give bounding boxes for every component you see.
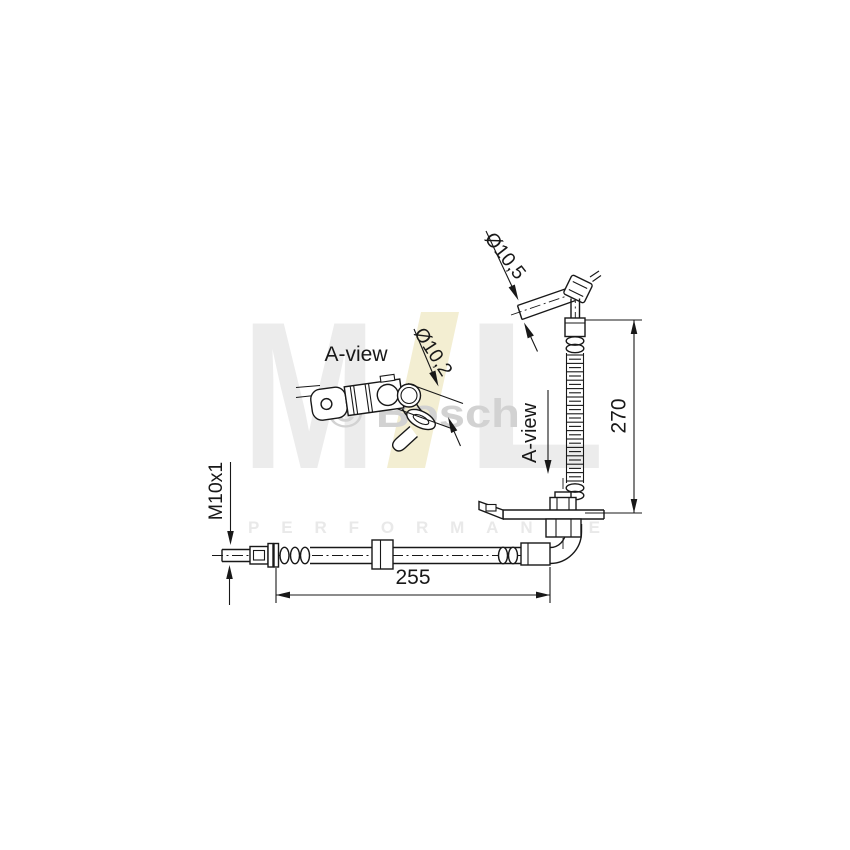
- dim-255-label: 255: [395, 566, 430, 589]
- brake-hose-technical-drawing: M L PERFORMANCE © Bosch: [0, 0, 850, 850]
- hose-mid-clamp: [372, 540, 393, 569]
- a-view-title: A-view: [324, 343, 388, 366]
- thread-size-label: M10x1: [205, 462, 227, 521]
- dimension-255: 255: [276, 566, 550, 603]
- lug-hole: [320, 398, 332, 410]
- a-view-pointer-label: A-view: [519, 402, 541, 463]
- technical-drawing-canvas: M L PERFORMANCE © Bosch: [0, 0, 850, 850]
- dia-banjo-label: Ø10,5: [480, 228, 530, 284]
- dim-270-label: 270: [608, 398, 631, 433]
- bracket-hex-nut-lower: [546, 519, 581, 537]
- dimension-m10x1: M10x1: [205, 462, 234, 605]
- bracket-hole: [486, 505, 496, 512]
- top-collar: [565, 318, 585, 337]
